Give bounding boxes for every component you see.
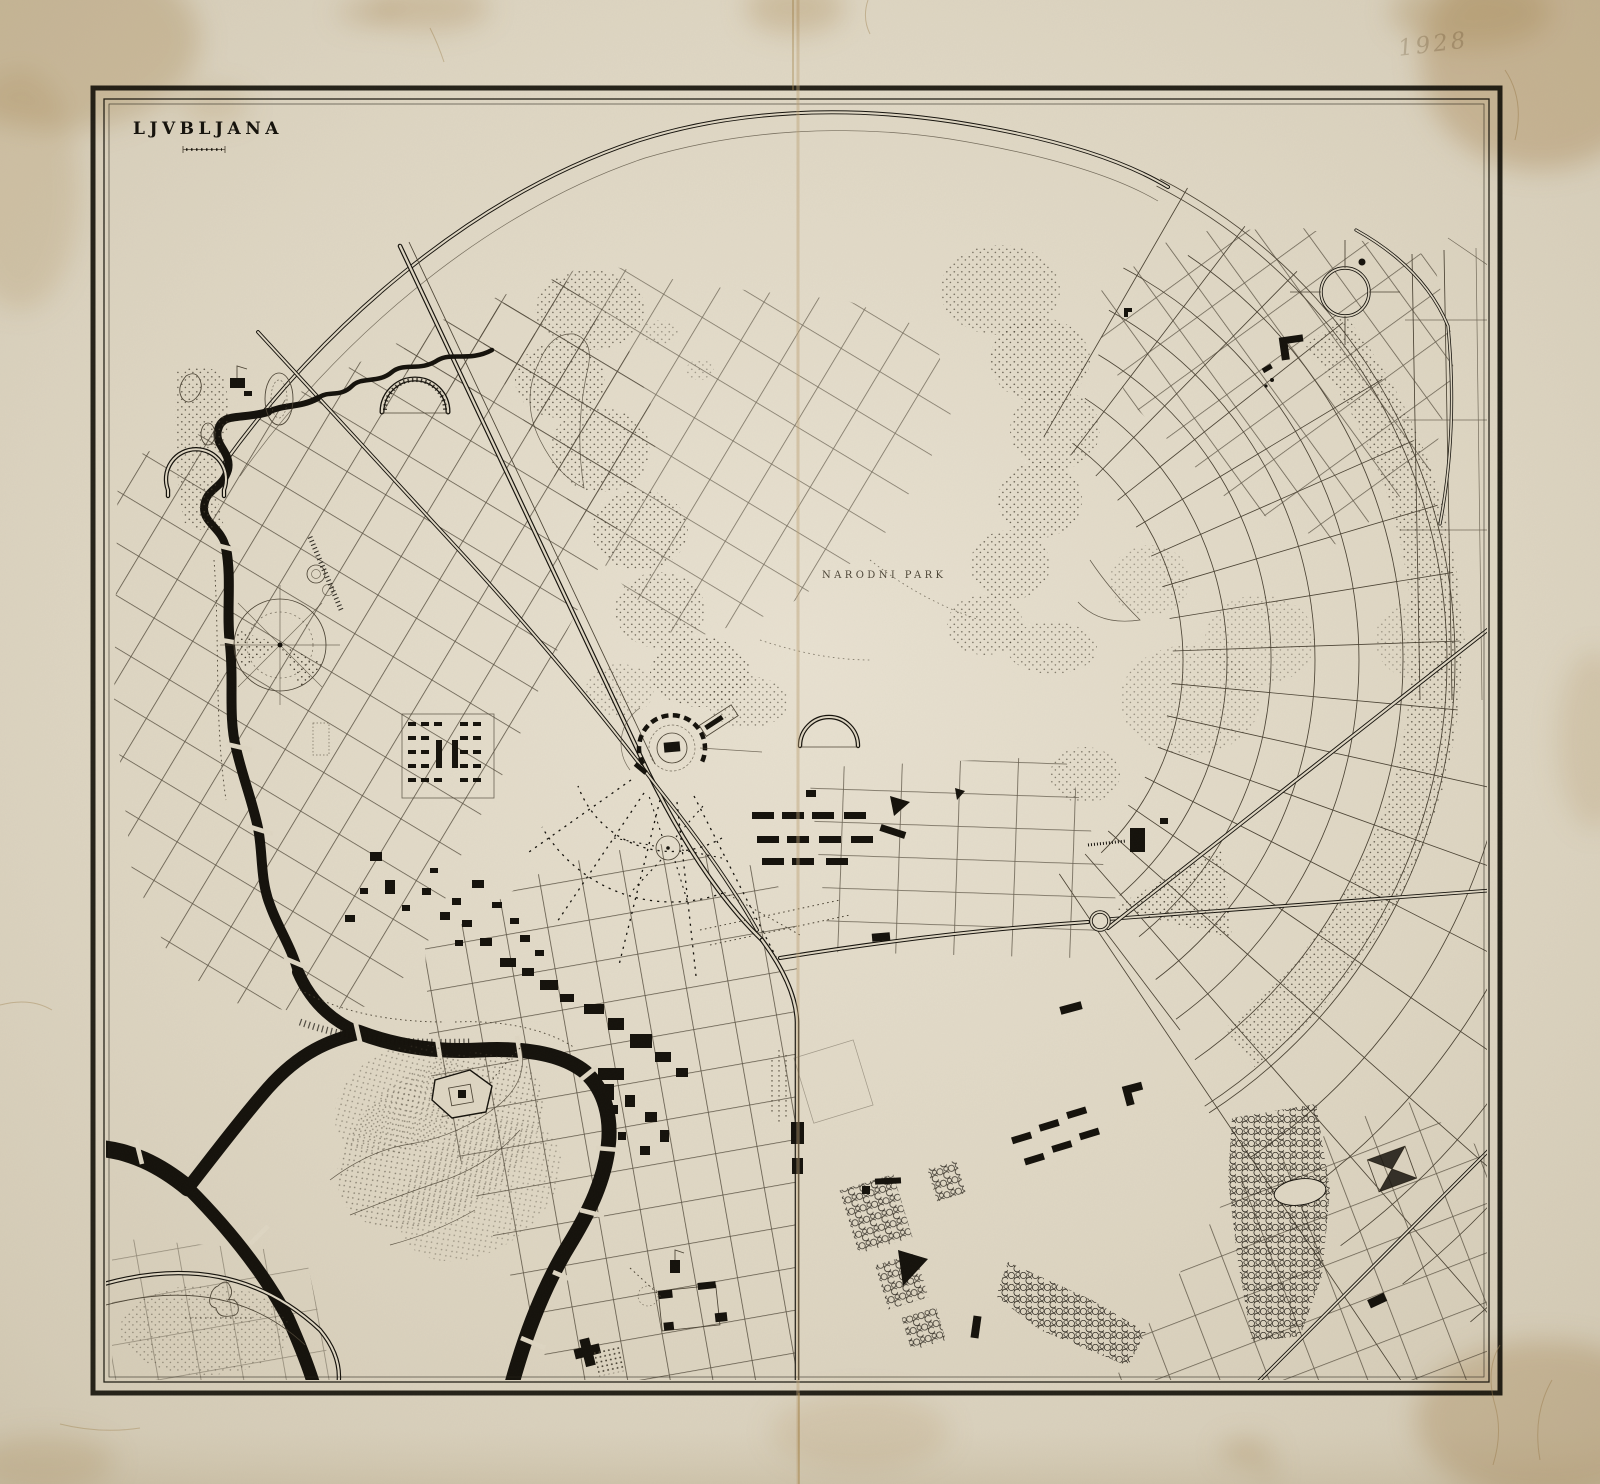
paper-grain xyxy=(0,0,1600,1484)
city-plan-map: LJVBLJANA NARODNI PARK 1928 xyxy=(0,0,1600,1484)
scanned-map-sheet: LJVBLJANA NARODNI PARK 1928 xyxy=(0,0,1600,1484)
